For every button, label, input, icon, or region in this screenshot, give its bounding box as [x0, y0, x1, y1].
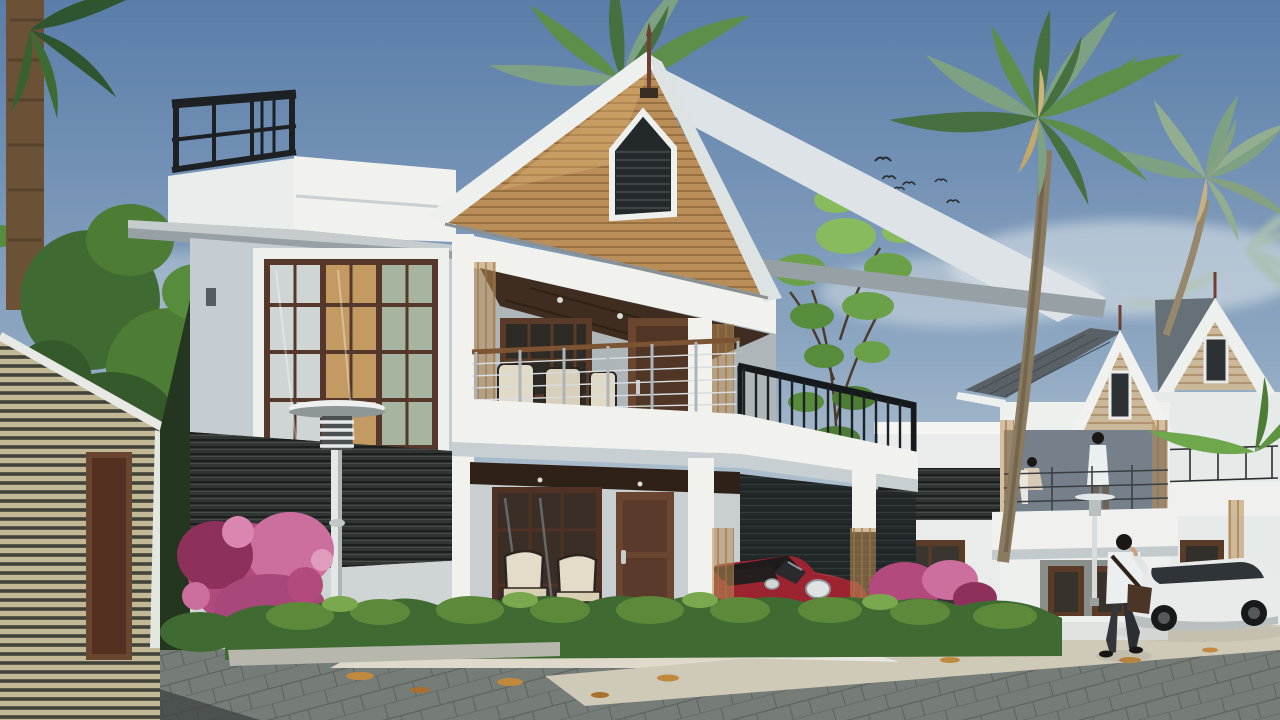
villa-render-scene: KL 01 DB1	[0, 0, 1280, 720]
car-headlight	[806, 580, 830, 598]
door-handle	[621, 550, 626, 564]
villa3-vent	[1205, 338, 1227, 382]
wall-sconce	[206, 288, 216, 306]
shoulder-bag	[1127, 584, 1152, 614]
pedestrian-head	[1116, 534, 1132, 550]
standing-man	[1087, 445, 1109, 485]
villa2-balcony-slab	[992, 508, 1178, 550]
lamp-lantern	[320, 416, 354, 450]
villa2-parapet	[874, 422, 1006, 434]
lamp-collar	[329, 519, 345, 527]
villa2-vent	[1110, 372, 1130, 418]
carport-pillar-white	[852, 470, 876, 532]
